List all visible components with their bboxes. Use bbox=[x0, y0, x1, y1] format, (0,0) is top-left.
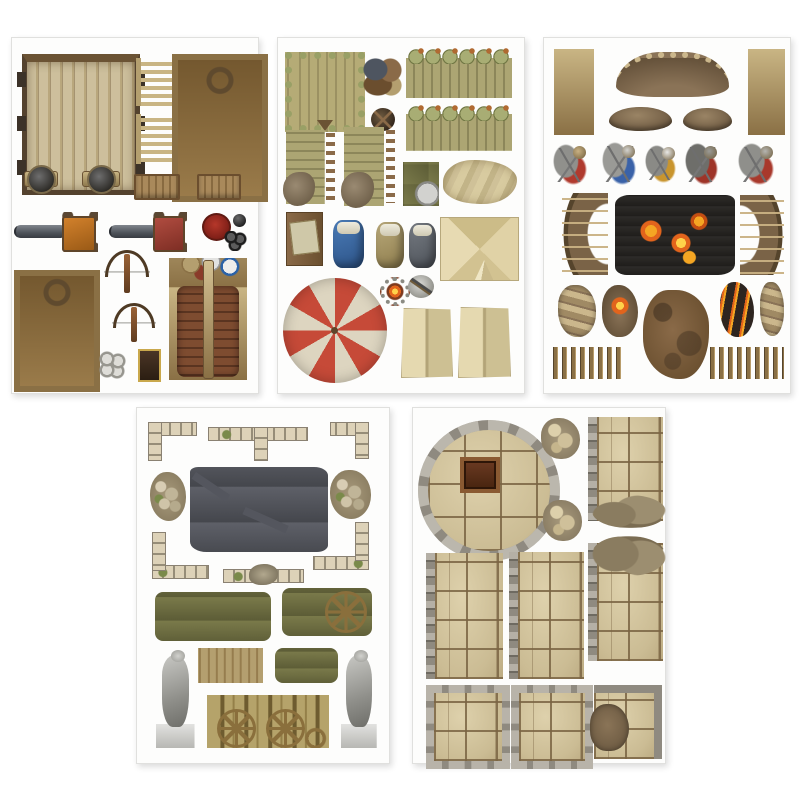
tent-panel-token-1 bbox=[401, 308, 453, 378]
ruined-l-wall-right bbox=[313, 522, 369, 574]
crossbow-token-2 bbox=[112, 301, 156, 343]
ruined-t-wall bbox=[208, 420, 308, 461]
sack-pile-token bbox=[363, 58, 402, 96]
tent-panel-token-2 bbox=[458, 307, 511, 378]
small-banner-token bbox=[138, 349, 161, 382]
burning-wreckage-token bbox=[615, 195, 735, 275]
shield-mount-token-2 bbox=[82, 164, 120, 194]
stake-row-right bbox=[710, 347, 784, 379]
sheet-battlefield-defenses bbox=[543, 37, 791, 394]
fallen-soldier-token-2 bbox=[602, 142, 636, 185]
sheet-army-camp bbox=[277, 37, 525, 394]
stone-floor-broken-bottom bbox=[588, 417, 663, 521]
crossbow-token-1 bbox=[104, 248, 150, 294]
battering-ram-token bbox=[169, 258, 247, 380]
sandbag-trench-curved bbox=[616, 52, 729, 97]
cannonball-cluster-grey bbox=[98, 351, 126, 379]
cannonball-single bbox=[233, 214, 246, 227]
campfire-token bbox=[380, 277, 410, 306]
rubble-pile-right bbox=[330, 470, 371, 519]
debris-crates-small bbox=[275, 648, 338, 683]
crumpled-tarp-token bbox=[443, 160, 517, 204]
stone-floor-strip-center bbox=[509, 552, 584, 679]
sheet-siege-weapons bbox=[11, 37, 259, 394]
product-photo-canvas bbox=[0, 0, 800, 800]
wooden-table-token-2 bbox=[197, 174, 241, 200]
ruined-corner-wall-left bbox=[148, 422, 197, 461]
ruined-corner-wall-right bbox=[330, 422, 369, 459]
stone-room-square-2 bbox=[511, 685, 593, 769]
stone-room-square-1 bbox=[426, 685, 510, 769]
map-board-token bbox=[286, 212, 323, 266]
fallen-soldier-token-5 bbox=[738, 143, 774, 185]
plate-with-axe-token bbox=[408, 275, 434, 298]
sandbag-strip-token bbox=[760, 282, 784, 336]
palisade-wall-token-2 bbox=[406, 105, 512, 151]
burning-debris-token bbox=[720, 282, 754, 337]
statue-monk-token bbox=[155, 648, 196, 748]
spike-barricade-left bbox=[554, 49, 594, 135]
sheet-ruins bbox=[136, 407, 390, 764]
cannonball-cluster-black bbox=[224, 231, 247, 251]
wall-with-rubble-token bbox=[223, 563, 304, 586]
scorched-ground-patch bbox=[643, 290, 709, 379]
rubble-patch-1 bbox=[541, 418, 580, 459]
rubble-patch-2 bbox=[543, 500, 582, 541]
cheval-de-frise-left bbox=[562, 193, 608, 275]
debris-lean-to-token bbox=[198, 648, 263, 683]
cannon-red-carriage bbox=[109, 212, 187, 252]
wooden-cart-token bbox=[207, 695, 329, 748]
ruined-l-wall-left bbox=[152, 532, 209, 583]
stone-floor-strip-left bbox=[426, 553, 503, 679]
debris-pile-with-wheel bbox=[282, 588, 372, 636]
siege-engine-frame-small bbox=[14, 270, 100, 392]
bedroll-blue-token bbox=[333, 220, 364, 268]
broken-palisade-token-1 bbox=[286, 130, 337, 204]
bedroll-tan-token bbox=[376, 222, 404, 268]
spike-barricade-right bbox=[748, 49, 785, 135]
supply-pile-token bbox=[403, 162, 439, 206]
campfire-ground-token bbox=[602, 285, 638, 337]
round-tower-floor bbox=[418, 420, 560, 561]
dirt-mound-token-2 bbox=[683, 108, 732, 131]
stone-floor-broken-corner bbox=[594, 685, 662, 759]
bedroll-grey-token bbox=[409, 223, 436, 268]
palisade-wall-token-1 bbox=[406, 48, 512, 98]
stake-row-left bbox=[553, 347, 625, 379]
cheval-de-frise-right bbox=[740, 195, 784, 275]
broken-palisade-token-2 bbox=[344, 127, 397, 206]
log-platform-token bbox=[285, 52, 365, 132]
fallen-soldier-token-4 bbox=[685, 143, 718, 185]
ruined-building-floor bbox=[190, 467, 328, 552]
statue-robed-token bbox=[340, 648, 378, 748]
debris-pile-crates bbox=[155, 592, 271, 641]
cannon-orange-carriage bbox=[14, 212, 98, 252]
shield-mount-token-1 bbox=[24, 164, 58, 194]
sheet-dungeon-floors bbox=[412, 407, 666, 764]
striped-parasol-token bbox=[283, 278, 387, 383]
square-tent-top-token bbox=[440, 217, 519, 281]
sandbag-curve-token bbox=[558, 285, 596, 337]
rubble-pile-left bbox=[150, 472, 186, 521]
fallen-soldier-token-3 bbox=[645, 145, 676, 183]
wooden-table-token-1 bbox=[134, 174, 180, 200]
fallen-soldier-token-1 bbox=[553, 144, 587, 185]
stone-floor-broken-top bbox=[588, 543, 663, 661]
dirt-mound-token-1 bbox=[609, 107, 672, 131]
